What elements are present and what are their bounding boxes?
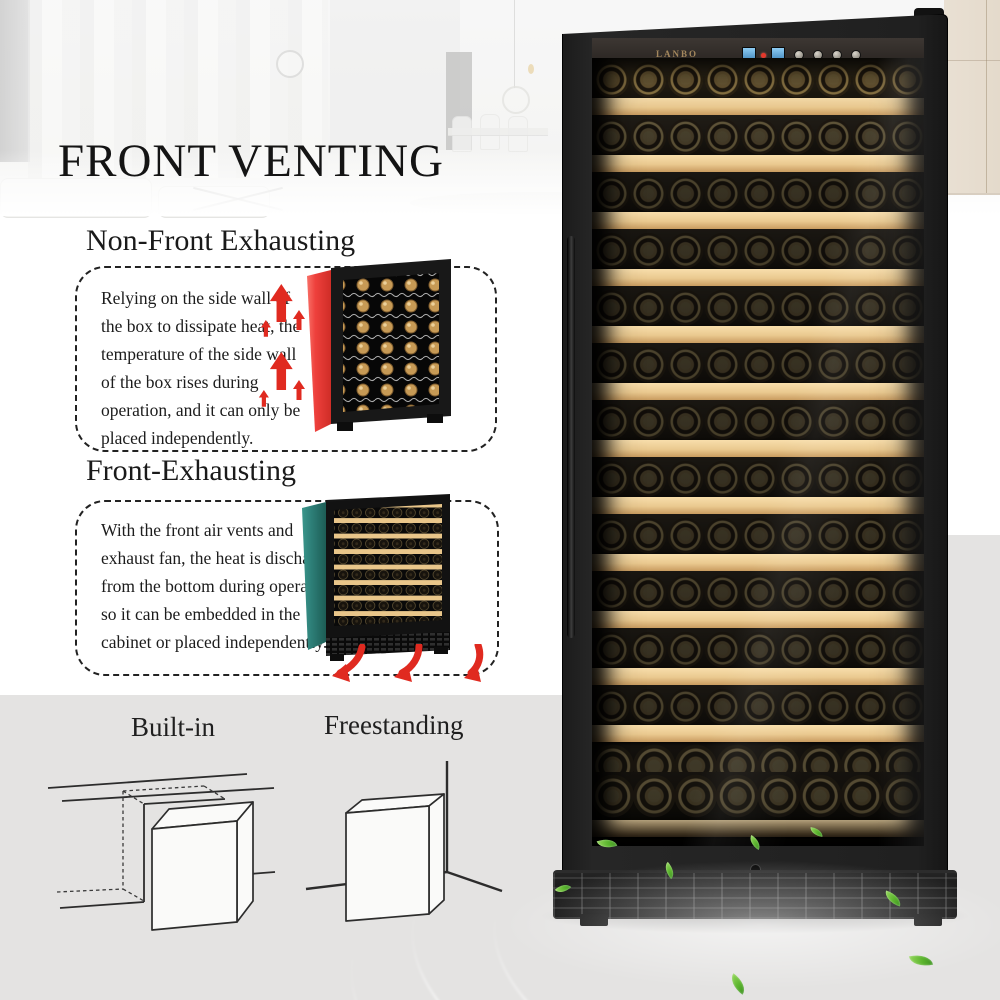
rack-row bbox=[592, 457, 924, 514]
bottle-row bbox=[592, 229, 924, 269]
bottle-row bbox=[592, 514, 924, 554]
bottle-row bbox=[592, 172, 924, 212]
rack-row bbox=[592, 514, 924, 571]
shelf bbox=[592, 554, 924, 571]
bottle-row bbox=[592, 400, 924, 440]
rack-row bbox=[592, 400, 924, 457]
rack-row bbox=[592, 571, 924, 628]
door-handle bbox=[567, 236, 575, 638]
rack-row bbox=[592, 229, 924, 286]
bottle-row bbox=[592, 286, 924, 326]
down-curved-arrows-icon bbox=[332, 644, 504, 688]
up-arrows-icon bbox=[256, 282, 308, 420]
bottle-row bbox=[592, 571, 924, 611]
shelf bbox=[592, 497, 924, 514]
rack-row bbox=[592, 343, 924, 400]
rack-row bbox=[592, 628, 924, 685]
shelf bbox=[592, 269, 924, 286]
rack-row bbox=[592, 115, 924, 172]
mini-cooler-front-vent bbox=[296, 492, 460, 662]
shelf bbox=[592, 98, 924, 115]
bottle-row bbox=[592, 628, 924, 668]
shelf bbox=[592, 326, 924, 343]
freestanding-label: Freestanding bbox=[324, 710, 463, 741]
shelf bbox=[592, 155, 924, 172]
rack-row bbox=[592, 685, 924, 742]
shelf bbox=[592, 611, 924, 628]
door-frame: LANBO bbox=[562, 14, 948, 882]
shelf bbox=[592, 440, 924, 457]
indicator-light bbox=[761, 53, 766, 58]
built-in-label: Built-in bbox=[131, 712, 215, 743]
non-front-heading: Non-Front Exhausting bbox=[86, 224, 355, 258]
bottle-row bbox=[592, 457, 924, 497]
built-in-diagram bbox=[48, 774, 275, 930]
rack-row bbox=[592, 286, 924, 343]
glass-door bbox=[592, 58, 924, 846]
bottle-rack bbox=[592, 58, 924, 742]
rack-row bbox=[592, 172, 924, 229]
wine-cooler: LANBO bbox=[562, 8, 948, 922]
mini-cooler-side-vent bbox=[303, 256, 455, 436]
rack-row bbox=[592, 58, 924, 115]
bottle-row bbox=[592, 58, 924, 98]
shelf bbox=[592, 212, 924, 229]
bottle-row bbox=[592, 343, 924, 383]
stacked-bottles-row bbox=[592, 772, 924, 820]
bottle-row bbox=[592, 115, 924, 155]
shelf bbox=[592, 383, 924, 400]
bottle-row bbox=[592, 685, 924, 725]
shelf bbox=[592, 725, 924, 742]
shelf bbox=[592, 668, 924, 685]
kitchen-wall bbox=[944, 0, 1000, 195]
front-heading: Front-Exhausting bbox=[86, 454, 296, 488]
infographic-canvas: FRONT VENTING Non-Front Exhausting Relyi… bbox=[0, 0, 1000, 1000]
page-title: FRONT VENTING bbox=[58, 134, 538, 188]
